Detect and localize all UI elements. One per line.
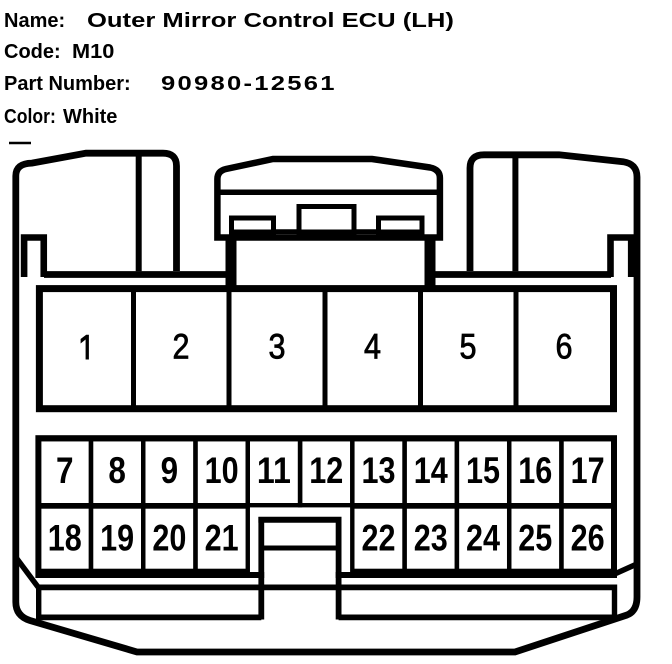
svg-text:7: 7: [56, 450, 74, 491]
svg-text:18: 18: [48, 518, 82, 559]
svg-text:17: 17: [571, 450, 605, 491]
svg-text:4: 4: [364, 328, 381, 367]
svg-text:26: 26: [571, 518, 605, 559]
svg-text:13: 13: [362, 450, 396, 491]
svg-text:2: 2: [173, 328, 190, 367]
svg-text:6: 6: [556, 328, 573, 367]
svg-text:11: 11: [257, 450, 291, 491]
svg-text:25: 25: [518, 518, 552, 559]
svg-text:22: 22: [362, 518, 396, 559]
svg-text:5: 5: [460, 328, 477, 367]
svg-text:20: 20: [152, 518, 186, 559]
svg-text:9: 9: [161, 450, 179, 491]
svg-text:8: 8: [108, 450, 126, 491]
svg-text:3: 3: [269, 328, 286, 367]
svg-text:16: 16: [518, 450, 552, 491]
svg-text:10: 10: [205, 450, 239, 491]
svg-text:24: 24: [466, 518, 500, 559]
svg-text:21: 21: [205, 518, 239, 559]
svg-text:12: 12: [309, 450, 343, 491]
svg-text:23: 23: [414, 518, 448, 559]
svg-text:14: 14: [414, 450, 448, 491]
svg-text:19: 19: [100, 518, 134, 559]
svg-text:15: 15: [466, 450, 500, 491]
